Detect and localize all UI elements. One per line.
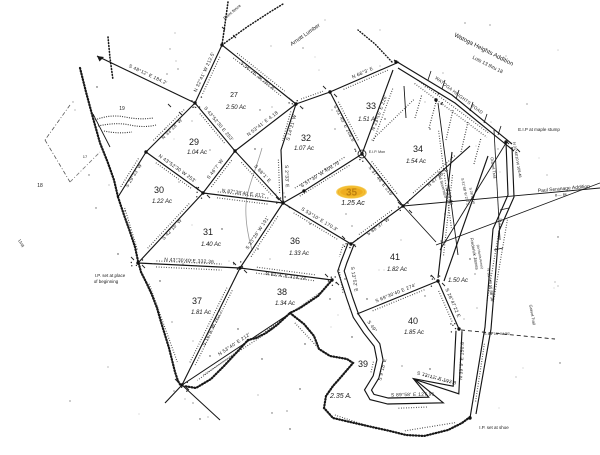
svg-text:S 2°33' E: S 2°33' E [283,165,290,188]
svg-text:35: 35 [346,188,358,199]
svg-text:1.22 Ac: 1.22 Ac [152,199,172,205]
svg-text:x: x [159,278,161,283]
svg-text:40: 40 [408,316,418,326]
svg-text:31: 31 [203,227,213,237]
svg-text:27: 27 [230,92,238,99]
svg-text:19: 19 [119,106,125,112]
svg-text:1.81 Ac: 1.81 Ac [191,310,211,316]
svg-text:34: 34 [413,144,423,154]
svg-text:29: 29 [189,137,199,147]
svg-text:1.07 Ac: 1.07 Ac [294,146,314,152]
svg-text:x: x [289,426,291,431]
svg-text:E.I.P. Mon: E.I.P. Mon [369,150,385,154]
svg-text:2.35 A.: 2.35 A. [329,393,352,400]
svg-text:33: 33 [366,101,376,111]
svg-text:x: x [257,246,259,251]
svg-text:x: x [254,146,256,151]
svg-text:x: x [209,353,211,358]
svg-text:x: x [344,276,346,281]
svg-text:x: x [261,356,263,361]
svg-text:I.P. set at place: I.P. set at place [95,273,126,278]
svg-text:1.51 Ac: 1.51 Ac [358,117,378,123]
svg-text:S 89°58' E 127.91: S 89°58' E 127.91 [391,392,435,399]
svg-text:x: x [366,296,368,301]
svg-text:x: x [96,84,98,89]
svg-text:x: x [324,166,326,171]
svg-text:37: 37 [192,296,202,306]
svg-text:17: 17 [83,154,88,159]
svg-text:30: 30 [154,185,164,195]
svg-text:32: 32 [301,133,311,143]
svg-text:1.34 Ac: 1.34 Ac [275,301,295,307]
svg-text:39: 39 [358,359,368,369]
svg-text:of beginning: of beginning [94,279,119,284]
svg-text:x: x [384,116,386,121]
svg-text:x: x [444,211,446,216]
svg-text:18: 18 [37,183,43,189]
svg-text:1.25 Ac: 1.25 Ac [341,200,365,207]
svg-text:x: x [124,208,126,213]
svg-text:1.82 Ac: 1.82 Ac [387,267,407,273]
svg-text:x: x [329,296,331,301]
svg-text:2.50 Ac: 2.50 Ac [225,105,246,111]
svg-text:x: x [237,326,239,331]
svg-text:x: x [199,416,201,421]
svg-text:x: x [309,221,311,226]
svg-text:x: x [299,386,301,391]
svg-text:x: x [351,334,353,339]
svg-text:1.33 Ac: 1.33 Ac [289,251,309,257]
svg-text:x: x [221,226,223,231]
svg-text:x: x [429,126,431,131]
svg-text:1.04 Ac: 1.04 Ac [187,150,207,156]
svg-text:E.I.P at maple stump: E.I.P at maple stump [518,127,560,132]
svg-text:1.50 Ac: 1.50 Ac [448,278,468,284]
svg-text:1.40 Ac: 1.40 Ac [201,242,221,248]
svg-text:S 84°15' W 30': S 84°15' W 30' [484,331,510,336]
svg-text:x: x [429,366,431,371]
svg-text:x: x [304,341,306,346]
svg-text:38: 38 [277,287,287,297]
svg-text:41: 41 [390,252,400,262]
svg-text:1.85 Ac: 1.85 Ac [404,330,424,336]
svg-text:x: x [469,256,471,261]
svg-text:x: x [117,251,119,256]
svg-text:36: 36 [290,236,300,246]
svg-text:I.P. set at shoe: I.P. set at shoe [479,425,509,430]
